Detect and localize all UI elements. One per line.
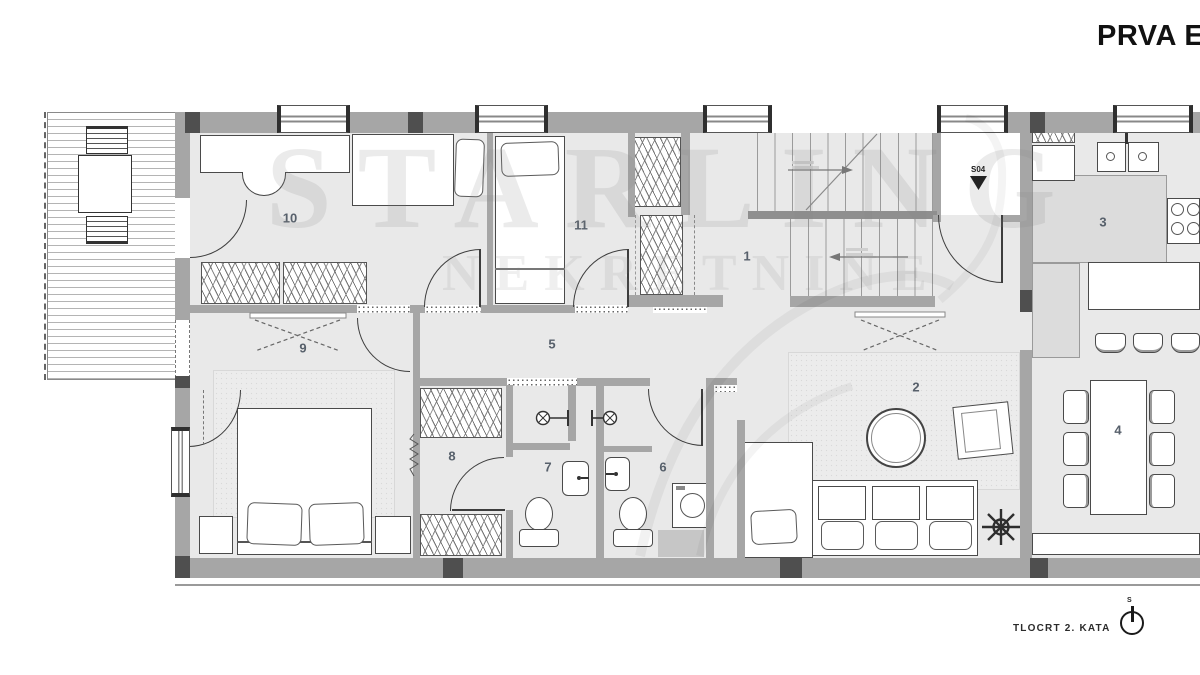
wall-closet-stairs [681,133,690,215]
window-left-dashed [175,320,190,378]
shower-partition [604,446,652,452]
dining-chair [1063,390,1089,424]
blanket-line [495,268,565,270]
wall-column [175,556,190,578]
washing-machine-drum [680,493,705,518]
stairwell-opening [772,112,937,133]
window [277,105,350,133]
wall-corridor-top [188,305,357,313]
shower-partition [508,443,570,450]
terrace-chair [86,126,128,154]
burner [1187,203,1200,216]
toilet-bowl [525,497,553,531]
bar-stool [1133,333,1163,353]
wall-corridor-top [628,295,723,307]
door-swing-dashed [203,390,204,445]
wall-column [185,112,200,133]
kitchen-island [1088,262,1200,310]
pillow [454,139,485,198]
room-label-9: 9 [299,341,306,356]
wall-hall-kitchen [1020,133,1032,312]
wall-bath6-living [706,385,714,558]
wall-column [408,112,423,133]
bar-stool [1095,333,1126,353]
room-label-3: 3 [1099,215,1106,230]
closet-dashed-line [635,215,636,295]
wall-corridor-top [481,305,575,313]
eave-outline [175,584,1200,586]
stair-landing-rail [748,211,937,219]
room-label-5: 5 [548,337,555,352]
terrace-door-opening [175,198,190,258]
threshold-niche [714,385,737,392]
room-label-2: 2 [912,380,919,395]
wall-under-stairs [790,296,935,307]
wall-room11-closet [628,133,635,217]
dining-chair [1063,474,1089,508]
dining-chair [1149,390,1175,424]
dining-chair [1149,474,1175,508]
wall-closet8-bath7 [506,510,513,558]
stairs-lower-flight [790,219,933,296]
room-label-11: 11 [574,218,588,233]
window [937,105,1008,133]
window-bedroom9 [171,427,190,497]
washbasin [562,461,589,496]
wall-column [175,376,190,388]
burner [1187,222,1200,235]
sofa-cushion [929,521,972,550]
desk [200,135,350,173]
toilet-bowl [619,497,647,531]
stairs-upper-flight [757,133,933,211]
wardrobe [420,514,502,556]
door-leaf [452,509,505,511]
sofa-cushion [750,509,798,545]
door-leaf [479,249,481,307]
burner [1171,203,1184,216]
room-label-8: 8 [448,449,455,464]
room-label-7: 7 [544,460,551,475]
terrace-edge [44,112,48,380]
wall-column [780,558,802,578]
window [475,105,548,133]
wall-bath7-bath6 [596,385,604,558]
pillow [246,502,302,546]
door-leaf [701,389,703,446]
wall-column [1030,558,1048,578]
room-label-10: 10 [283,211,297,226]
washbasin [605,457,630,491]
sink-drain [1138,152,1147,161]
room-label-4: 4 [1114,423,1121,438]
wall-room10-room11 [487,133,493,305]
sofa-seat [926,486,974,520]
wall-stairs-vestibule [933,133,941,219]
washing-machine-panel [676,486,685,490]
burner [1171,222,1184,235]
armchair-seat [961,409,1001,453]
wall-living-dining [1020,350,1032,558]
room-label-1: 1 [743,249,750,264]
wardrobe [640,215,683,295]
toilet-tank [519,529,559,547]
door-threshold-bedroom9 [357,305,410,313]
north-letter: S [1127,597,1132,604]
door-leaf [1001,215,1003,283]
pillow [308,502,364,546]
sofa-cushion [875,521,918,550]
wall-stub [1003,215,1020,222]
nightstand [199,516,233,554]
wall-living-left [737,420,745,558]
kitchen-cabinet [1032,145,1075,181]
wall-column [1020,290,1032,312]
sideboard [1032,533,1200,555]
door-leaf [627,249,629,307]
threshold-hall [653,307,707,313]
wardrobe [201,262,280,304]
nightstand [375,516,411,554]
toilet-tank [613,529,653,547]
terrace-chair [86,216,128,244]
pillow [500,141,559,177]
shower-partition [568,385,576,441]
sink-drain [1106,152,1115,161]
room-label-6: 6 [659,460,666,475]
entry-vestibule-floor [941,133,1020,215]
floor-plan-canvas: PRVA E STARLING NEKRETNINE TLOCRT 2. KAT… [0,0,1200,675]
window [703,105,772,133]
dining-table [1090,380,1147,515]
coffee-table-inner [871,413,921,463]
wall-corridor-bottom [577,378,650,386]
single-bed [352,134,454,206]
kitchen-counter-return [1032,263,1080,358]
wardrobe [283,262,367,304]
plan-caption: TLOCRT 2. KATA [1013,623,1111,634]
wall-corridor-bottom [420,378,507,386]
dining-chair [1149,432,1175,466]
sofa-cushion [821,521,864,550]
wardrobe [420,388,502,438]
sofa-seat [872,486,920,520]
utility-pedestal [658,530,704,557]
wall-bedroom9-closet8 [413,313,420,558]
page-title: PRVA E [1097,20,1200,53]
wardrobe [633,137,681,207]
terrace-table [78,155,132,213]
wall-corridor-top [410,305,425,313]
closet-dashed-line [694,215,695,295]
window [1113,105,1193,133]
bar-stool [1171,333,1200,353]
wall-column [1030,112,1045,133]
north-icon-needle [1131,606,1134,622]
door-threshold-bath7 [507,378,577,386]
dining-chair [1063,432,1089,466]
faucet-icon [1125,133,1128,144]
sofa-seat [818,486,866,520]
wall-column [443,558,463,578]
